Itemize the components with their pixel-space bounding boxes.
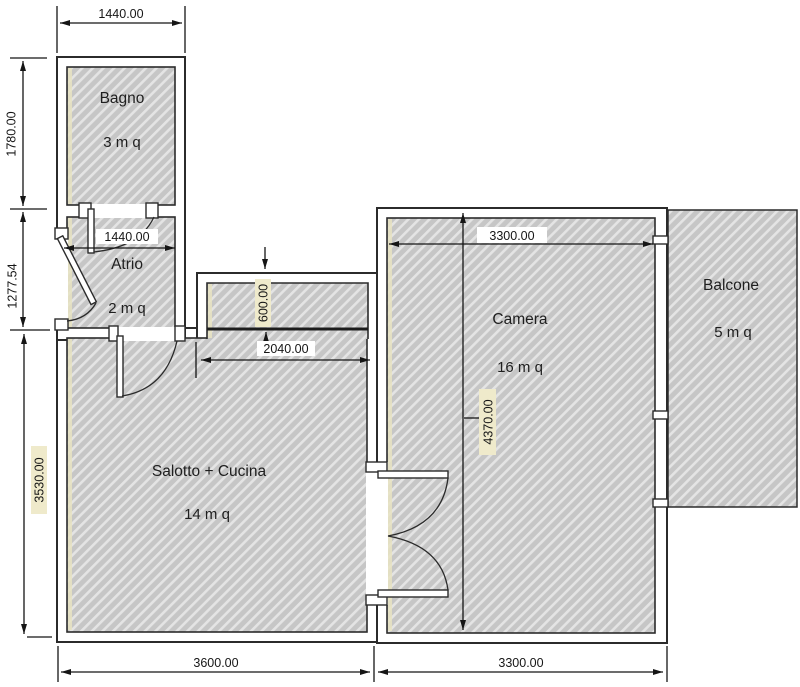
room-label-bagno: Bagno [100,90,145,107]
dim-bagno-height: 1780.00 [4,111,18,156]
room-area-atrio: 2 m q [108,300,146,317]
room-area-salotto: 14 m q [184,506,230,523]
room-label-camera: Camera [492,311,548,328]
double-door-leaf-top [378,471,448,478]
door-atrio-salotto-leaf [117,336,123,397]
room-area-balcone: 5 m q [714,324,752,341]
dim-camera-width-bottom: 3300.00 [498,656,543,670]
room-area-camera: 16 m q [497,359,543,376]
double-door-leaf-bottom [378,590,448,597]
room-fills [67,67,655,633]
dim-atrio-inner-width: 1440.00 [104,230,149,244]
room-salotto-fill [67,338,367,632]
dim-niche-width: 2040.00 [263,342,308,356]
dim-atrio-height: 1277.54 [5,263,19,308]
dim-salotto-width: 3600.00 [193,656,238,670]
room-balcone-fill [668,210,797,507]
room-label-salotto: Salotto + Cucina [152,463,267,480]
room-label-balcone: Balcone [703,277,759,294]
dim-bagno-width: 1440.00 [98,7,143,21]
dim-camera-height: 4370.00 [481,399,495,444]
niche-fill [207,283,368,339]
dim-camera-width-top: 3300.00 [489,229,534,243]
floor-plan-canvas: 1440.00 1780.00 1277.54 3530.00 3600.00 … [0,0,800,687]
door-bagno-leaf [88,209,94,253]
room-camera-fill [387,218,655,633]
room-area-bagno: 3 m q [103,134,141,151]
dim-salotto-height: 3530.00 [32,457,46,502]
room-label-atrio: Atrio [111,256,143,273]
floor-plan: 1440.00 1780.00 1277.54 3530.00 3600.00 … [0,0,800,687]
dim-niche-depth: 600.00 [256,284,270,322]
